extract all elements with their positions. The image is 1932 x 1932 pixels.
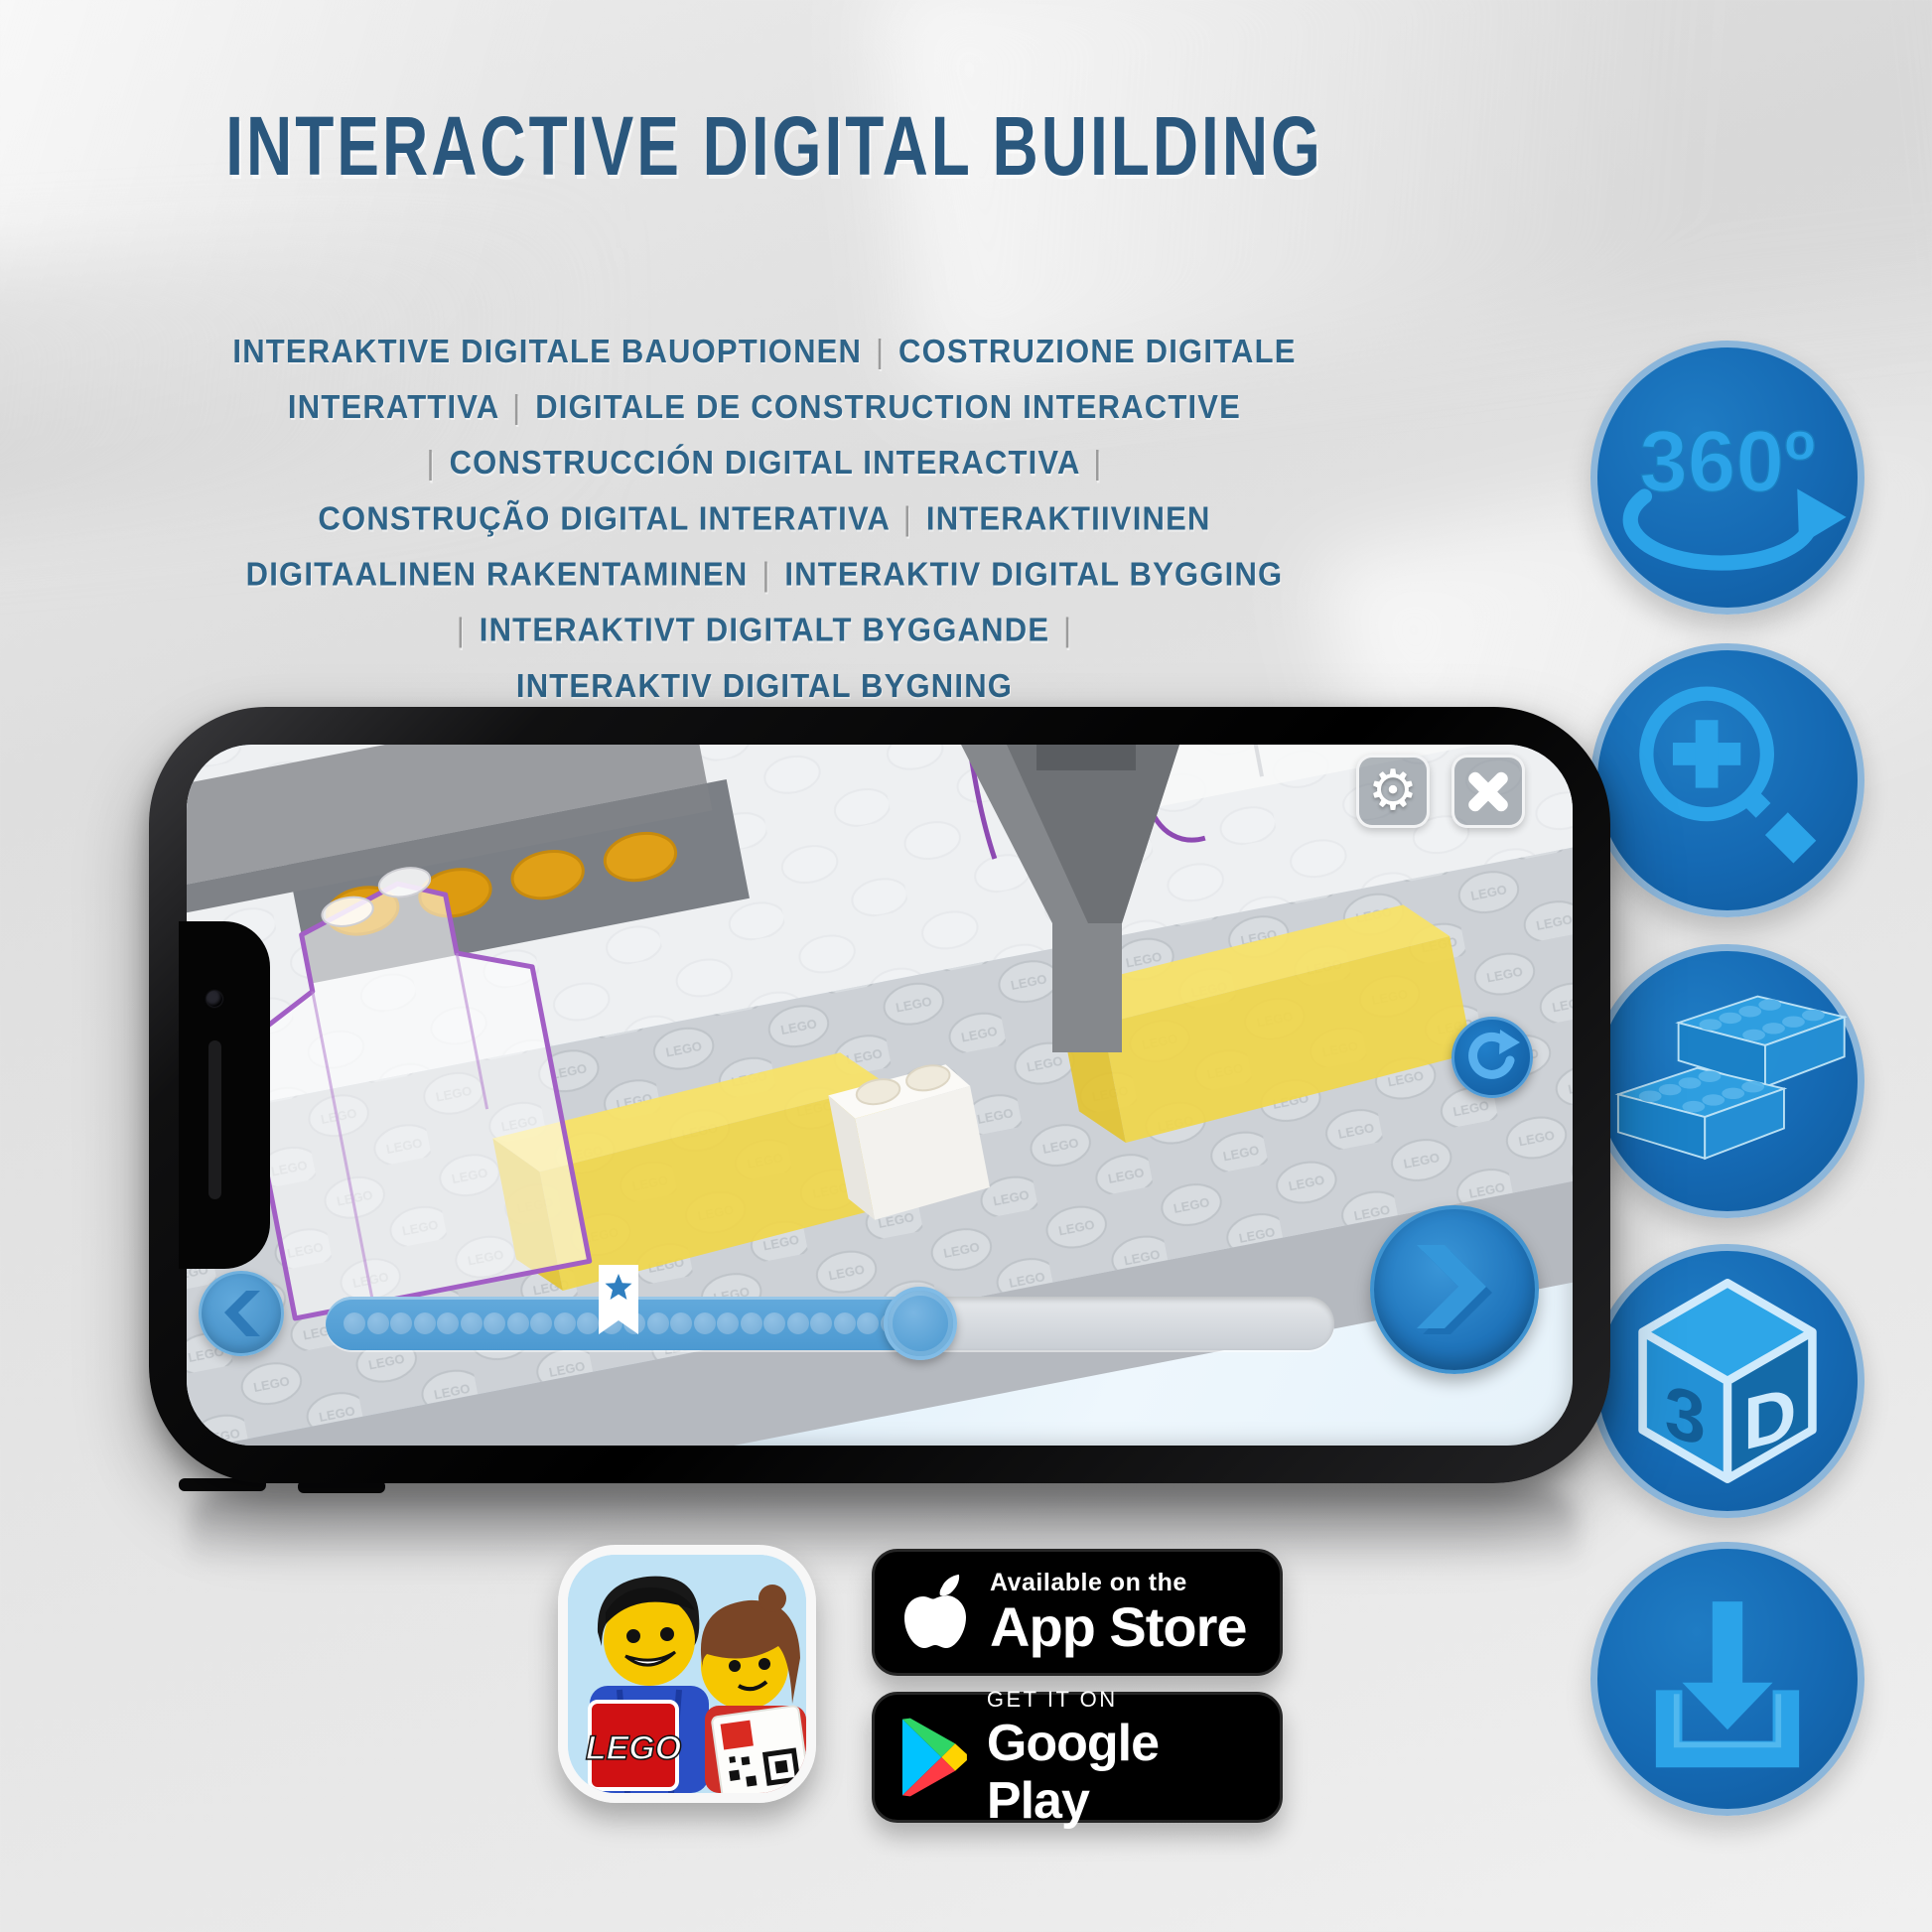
svg-text:LEGO: LEGO <box>586 1729 681 1767</box>
app-store-badge[interactable]: Available on the App Store <box>872 1549 1283 1676</box>
phone-mockup: LEGO LEGO <box>149 707 1610 1483</box>
rotate-icon <box>1462 1028 1522 1087</box>
subtitle-line: INTERAKTIV DIGITAL BYGNING <box>154 658 1375 714</box>
lego-minifigures-art: LEGO <box>568 1555 806 1793</box>
360-rotation-icon: 360º <box>1590 341 1864 615</box>
close-button[interactable] <box>1451 755 1525 828</box>
phone-screen: LEGO LEGO <box>187 745 1573 1446</box>
3d-view-icon: 3 D <box>1590 1244 1864 1518</box>
subtitle-line: CONSTRUÇÃO DIGITAL INTERATIVA | INTERAKT… <box>154 490 1375 546</box>
phone-notch <box>179 921 270 1269</box>
progress-step-dot <box>694 1312 716 1334</box>
settings-button[interactable]: ⚙ <box>1356 755 1430 828</box>
progress-step-dot <box>787 1312 809 1334</box>
chevron-right-icon <box>1417 1245 1492 1334</box>
next-step-button[interactable] <box>1370 1205 1539 1374</box>
svg-text:3: 3 <box>1665 1369 1706 1461</box>
app-store-name: App Store <box>990 1597 1247 1657</box>
progress-step-dot <box>810 1312 832 1334</box>
magnifier-plus-glyph <box>1597 643 1858 917</box>
subtitle-line: INTERATTIVA | DIGITALE DE CONSTRUCTION I… <box>154 379 1375 435</box>
subtitle: INTERAKTIVE DIGITALE BAUOPTIONEN | COSTR… <box>154 324 1375 714</box>
google-play-badge[interactable]: GET IT ON Google Play <box>872 1692 1283 1823</box>
progress-step-dot <box>647 1312 669 1334</box>
subtitle-line: INTERAKTIVE DIGITALE BAUOPTIONEN | COSTR… <box>154 324 1375 379</box>
lego-bricks-glyph <box>1597 944 1858 1218</box>
progress-step-dot <box>577 1312 599 1334</box>
google-play-name: Google Play <box>987 1715 1270 1830</box>
lego-app-icon[interactable]: LEGO <box>558 1545 816 1803</box>
page-title: INTERACTIVE DIGITAL BUILDING <box>0 97 1549 195</box>
360-degree-glyph: 360º <box>1597 341 1858 615</box>
zoom-in-icon <box>1590 643 1864 917</box>
progress-step-dot <box>507 1312 529 1334</box>
front-camera <box>207 991 222 1007</box>
progress-step-dot <box>344 1312 365 1334</box>
progress-step-dot <box>414 1312 436 1334</box>
gear-icon: ⚙ <box>1368 763 1418 819</box>
progress-step-dot <box>670 1312 692 1334</box>
progress-step-dot <box>483 1312 505 1334</box>
progress-step-dot <box>530 1312 552 1334</box>
progress-step-dot <box>461 1312 483 1334</box>
progress-step-dot <box>834 1312 856 1334</box>
google-play-icon <box>898 1717 969 1798</box>
star-icon <box>604 1273 633 1303</box>
lego-logo: LEGO <box>586 1702 681 1789</box>
chevron-left-icon <box>222 1291 260 1336</box>
building-bricks-icon <box>1590 944 1864 1218</box>
language-separator: | <box>508 388 525 426</box>
language-separator: | <box>422 444 439 482</box>
progress-step-dot <box>857 1312 879 1334</box>
language-separator: | <box>1089 444 1106 482</box>
speaker-slit <box>208 1040 221 1199</box>
google-play-tagline: GET IT ON <box>987 1685 1270 1715</box>
progress-thumb[interactable] <box>884 1287 957 1360</box>
download-icon <box>1590 1542 1864 1816</box>
subtitle-line: | CONSTRUCCIÓN DIGITAL INTERACTIVA | <box>154 435 1375 490</box>
previous-step-button[interactable] <box>199 1271 284 1356</box>
subtitle-line: | INTERAKTIVT DIGITALT BYGGANDE | <box>154 603 1375 658</box>
language-separator: | <box>1059 611 1076 648</box>
download-arrow-glyph <box>1597 1542 1858 1816</box>
language-separator: | <box>758 555 774 593</box>
apple-icon <box>902 1573 968 1652</box>
subtitle-line: DIGITAALINEN RAKENTAMINEN | INTERAKTIV D… <box>154 547 1375 603</box>
progress-bar[interactable] <box>326 1297 1334 1350</box>
svg-text:D: D <box>1743 1370 1796 1465</box>
progress-step-dot <box>554 1312 576 1334</box>
progress-step-dot <box>763 1312 785 1334</box>
progress-step-dot <box>367 1312 389 1334</box>
language-separator: | <box>899 499 916 537</box>
progress-step-dot <box>717 1312 739 1334</box>
close-icon <box>1454 758 1522 825</box>
progress-step-dot <box>437 1312 459 1334</box>
language-separator: | <box>872 333 889 370</box>
app-store-tagline: Available on the <box>990 1568 1247 1597</box>
progress-step-dot <box>390 1312 412 1334</box>
language-separator: | <box>453 611 470 648</box>
rotate-view-button[interactable] <box>1451 1017 1533 1098</box>
progress-step-dot <box>741 1312 762 1334</box>
3d-cube-glyph: 3 D <box>1597 1244 1858 1518</box>
svg-text:360º: 360º <box>1639 412 1816 509</box>
